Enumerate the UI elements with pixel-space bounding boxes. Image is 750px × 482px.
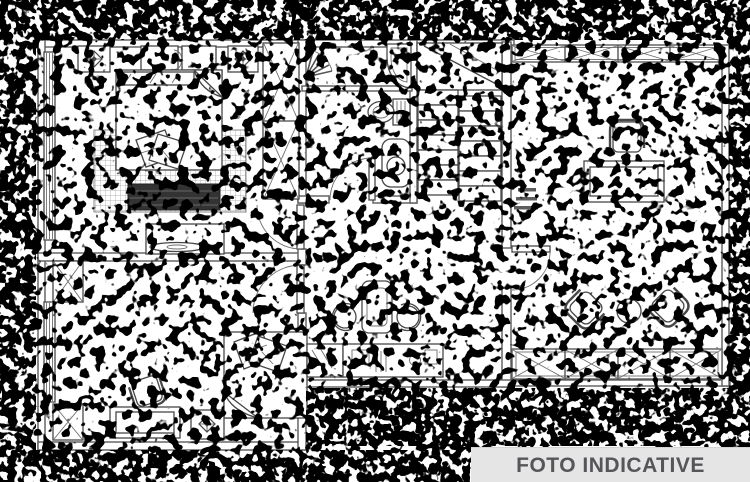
photo-indicative-banner: FOTO INDICATIVE bbox=[471, 447, 750, 482]
floor-plan-image: FOTO INDICATIVE bbox=[0, 0, 750, 482]
banner-label: FOTO INDICATIVE bbox=[516, 454, 705, 478]
floor-plan-drawing bbox=[0, 0, 750, 482]
noise-overlay bbox=[0, 0, 750, 482]
